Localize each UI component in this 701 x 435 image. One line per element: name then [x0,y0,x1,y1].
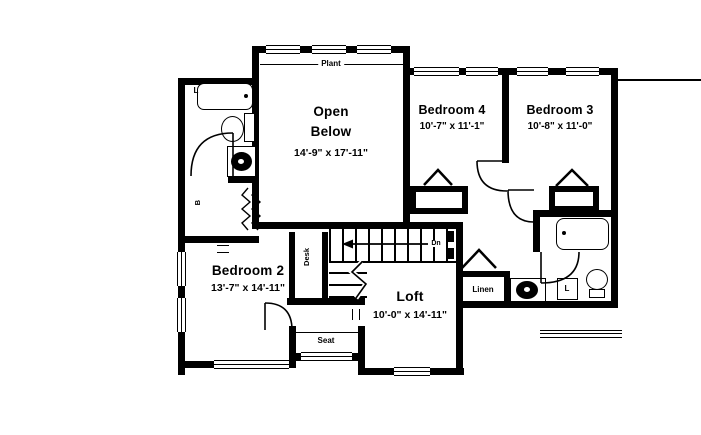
wall-bedroom2-top [178,236,259,243]
window [177,252,186,286]
seat-bench-line [296,332,358,333]
window [394,367,430,376]
bedroom3-dims: 10'-8" x 11'-0" [528,122,593,132]
closet-b-label: B [194,200,202,205]
linen-abbrev-right: L [565,285,570,293]
stairs-down-label: Dn [428,240,443,247]
bathtub-drain [244,94,248,98]
toilet-base [589,289,605,298]
bedroom4-name: Bedroom 4 [418,104,485,117]
open-below-name-line2: Below [311,125,352,139]
wall-bedroom2-east [289,232,295,305]
window [466,67,498,76]
sink-faucet-dot [524,287,530,292]
wall-stairs-north [327,222,463,229]
toilet-bowl [221,116,244,142]
roof-edge-bottom-right [540,330,622,338]
wall-bath1-south [228,177,259,183]
stairs-lower-run [329,264,367,298]
closet-rod-icon [424,170,452,185]
window [177,298,186,332]
door-bedroom2 [265,303,292,330]
bedroom2-name: Bedroom 2 [212,264,284,278]
closet-bedroom4 [410,186,468,214]
plant-label: Plant [318,60,344,68]
window [301,352,352,361]
closet-bedroom3 [549,186,599,212]
window [214,360,289,369]
toilet-bowl [586,269,608,290]
bedroom4-dims: 10'-7" x 11'-1" [420,122,485,132]
opening-mark [352,309,360,320]
floor-plan: Open Below 14'-9" x 17'-11" Bedroom 4 10… [0,0,701,435]
window [357,45,391,54]
wall-desk-east [322,232,328,305]
stair-newel-post [448,248,454,259]
opening-mark [217,245,229,253]
wall-right [611,68,618,308]
wall-bay-right [358,326,365,375]
roof-line-top-right [618,79,701,81]
linen-abbrev-left: L [194,87,199,95]
window [312,45,346,54]
wall-loft-right [456,222,463,375]
door-bedroom3 [508,190,534,222]
toilet-tank [244,113,255,142]
wall-bath2-west-upper [533,210,540,252]
closet-rod-icon [462,250,496,268]
stair-newel-post [448,231,454,242]
desk-label: Desk [303,248,311,266]
wall-linen-top [456,271,510,277]
bedroom2-dims: 13'-7" x 14'-11" [211,283,285,294]
sink-faucet-dot [238,159,244,164]
open-below-dims: 14'-9" x 17'-11" [294,148,368,159]
wall-bedroom4-3-divider [502,75,509,163]
closet-rod-icon [556,170,588,186]
seat-label: Seat [318,337,335,345]
loft-name: Loft [396,289,423,303]
window [517,67,548,76]
wall-loft-north [287,298,365,305]
window [566,67,599,76]
window [266,45,300,54]
bathtub-drain [562,231,566,235]
open-below-name-line1: Open [313,105,348,119]
bedroom3-name: Bedroom 3 [526,104,593,117]
loft-dims: 10'-0" x 14'-11" [373,310,447,321]
window [414,67,459,76]
door-bedroom4 [477,161,507,191]
linen-label: Linen [472,286,493,294]
